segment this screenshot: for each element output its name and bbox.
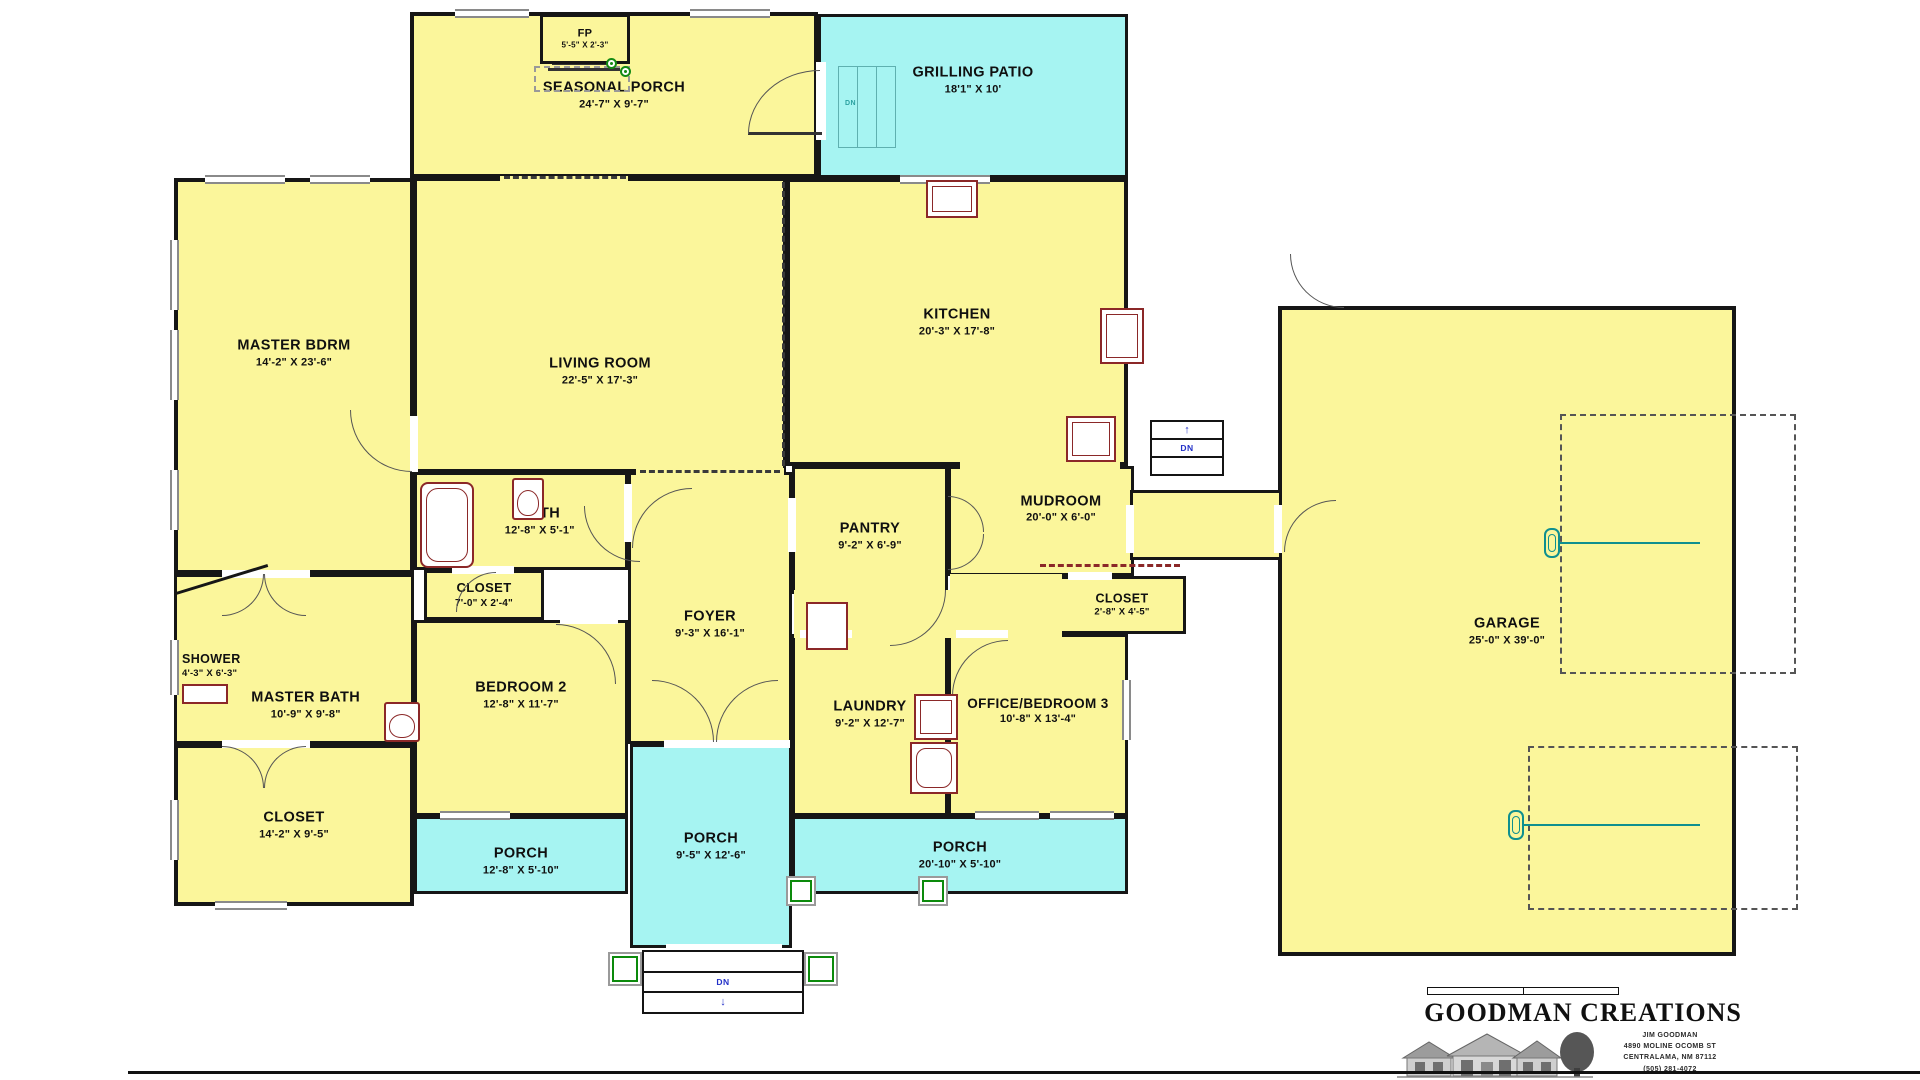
stair-tread: [858, 67, 877, 147]
room-dims: 9'-3" X 16'-1": [631, 626, 789, 640]
room-dims: 9'-5" X 12'-6": [633, 848, 789, 862]
room-dims: 4'-3" X 6'-3": [182, 668, 241, 680]
stairs-dn-label: DN: [845, 100, 856, 107]
opening-dash-line: [504, 176, 626, 179]
door-gap: [956, 630, 1008, 638]
garage-door-track: [1560, 542, 1700, 544]
garage-bay-outline: [1560, 414, 1796, 674]
window: [170, 800, 179, 860]
room-name: OFFICE/BEDROOM 3: [951, 695, 1125, 713]
room-pantry: PANTRY 9'-2" X 6'-9": [792, 466, 948, 594]
washer: [914, 694, 958, 740]
room-dims: 10'-8" X 13'-4": [951, 713, 1125, 727]
garage-door-opener-icon: [1544, 528, 1560, 558]
room-label: MASTER BDRM 14'-2" X 23'-6": [178, 336, 410, 369]
window: [975, 811, 1039, 820]
window: [1122, 680, 1131, 740]
up-arrow: ↑: [1184, 425, 1190, 436]
room-label: KITCHEN 20'-3" X 17'-8": [790, 305, 1124, 338]
room-mudroom-closet: CLOSET 2'-8" X 4'-5": [1058, 576, 1186, 634]
window: [170, 640, 179, 695]
room-label: FOYER 9'-3" X 16'-1": [631, 607, 789, 640]
room-name: FOYER: [631, 607, 789, 626]
builder-logo: GOODMAN CREATIONS JIM: [1395, 984, 1745, 1076]
room-label: PANTRY 9'-2" X 6'-9": [795, 520, 945, 553]
toilet: [384, 702, 420, 742]
window: [1050, 811, 1114, 820]
plant-icon: [620, 66, 631, 77]
room-porch-center: PORCH 9'-5" X 12'-6": [630, 744, 792, 948]
door-gap: [1274, 505, 1282, 553]
room-name: PORCH: [417, 844, 625, 863]
logo-contact-line: CENTRALAMA, NM 87112: [1595, 1052, 1745, 1063]
floor-plan-canvas: SEASONAL PORCH 24'-7" X 9'-7" GRILLING P…: [0, 0, 1920, 1080]
stove: [1100, 308, 1144, 364]
window: [170, 240, 179, 310]
porch-column: [922, 880, 944, 902]
window: [170, 330, 179, 400]
logo-address-block: JIM GOODMAN 4890 MOLINE OCOMB ST CENTRAL…: [1595, 1030, 1745, 1075]
dryer-inner: [916, 748, 952, 788]
room-porch-right: PORCH 20'-10" X 5'-10": [792, 816, 1128, 894]
vanity-sink: [182, 684, 228, 704]
wall-segment: [1427, 987, 1619, 995]
kitchen-sink: [926, 180, 978, 218]
fridge-inner: [1072, 422, 1110, 456]
room-master-bedroom: MASTER BDRM 14'-2" X 23'-6": [174, 178, 414, 574]
stair-tread: DN: [644, 973, 802, 994]
room-dims: 10'-9" X 9'-8": [200, 707, 411, 721]
logo-title: GOODMAN CREATIONS: [1423, 998, 1743, 1028]
garage-stairs: ↑ DN: [1150, 420, 1224, 476]
front-steps: DN ↓: [642, 950, 804, 1014]
kitchen-mudroom-opening: [960, 462, 1120, 472]
room-name: PORCH: [633, 829, 789, 848]
room-dims: 12'-8" X 11'-7": [417, 697, 625, 711]
room-dims: 22'-5" X 17'-3": [417, 373, 783, 387]
door-gap: [560, 616, 618, 624]
room-fireplace: FP 5'-5" X 2'-3": [540, 14, 630, 64]
porch-column: [790, 880, 812, 902]
room-name: SHOWER: [182, 652, 241, 668]
stove-inner: [1106, 314, 1138, 358]
room-porch-left: PORCH 12'-8" X 5'-10": [414, 816, 628, 894]
room-label: PORCH 9'-5" X 12'-6": [633, 829, 789, 862]
window: [170, 470, 179, 530]
room-dims: 14'-2" X 23'-6": [178, 355, 410, 369]
garage-entry-arc: [1290, 254, 1344, 308]
garage-door-track: [1524, 824, 1700, 826]
room-label: OFFICE/BEDROOM 3 10'-8" X 13'-4": [951, 695, 1125, 727]
toilet-bowl: [517, 490, 539, 516]
bathtub-inner: [426, 488, 468, 562]
washer-inner: [920, 700, 952, 734]
breezeway-connector: [1130, 490, 1282, 560]
room-dims: 20'-3" X 17'-8": [790, 324, 1124, 338]
room-dims: 9'-2" X 6'-9": [795, 538, 945, 552]
room-label: LIVING ROOM 22'-5" X 17'-3": [417, 355, 783, 388]
dryer: [910, 742, 958, 794]
logo-contact-line: JIM GOODMAN: [1595, 1030, 1745, 1041]
window: [690, 9, 770, 18]
steps-dn-label: DN: [716, 977, 729, 987]
room-label: FP 5'-5" X 2'-3": [543, 27, 627, 52]
refrigerator: [1066, 416, 1116, 462]
plant-icon: [606, 58, 617, 69]
garage-bay-outline: [1528, 746, 1798, 910]
patio-stairs: [838, 66, 896, 148]
bottom-rule: [128, 1071, 1920, 1074]
room-label: CLOSET 14'-2" X 9'-5": [178, 808, 410, 841]
window: [455, 9, 529, 18]
porch-column: [808, 956, 834, 982]
room-dims: 12'-8" X 5'-10": [417, 863, 625, 877]
logo-contact-line: 4890 MOLINE OCOMB ST: [1595, 1041, 1745, 1052]
toilet-bowl: [389, 714, 415, 738]
room-name: MASTER BATH: [200, 688, 411, 707]
stair-tread: [644, 952, 802, 973]
toilet: [512, 478, 544, 520]
stairs-dn-label: DN: [1180, 443, 1193, 453]
room-label: MASTER BATH 10'-9" X 9'-8": [200, 688, 411, 721]
stair-tread: [1152, 458, 1222, 474]
room-label: PORCH 20'-10" X 5'-10": [795, 838, 1125, 871]
stair-tread: [877, 67, 895, 147]
room-label: PORCH 12'-8" X 5'-10": [417, 844, 625, 877]
bathtub: [420, 482, 474, 568]
door-gap: [1068, 572, 1112, 580]
room-name: CLOSET: [1061, 591, 1183, 607]
window: [215, 901, 287, 910]
cabinet: [806, 602, 848, 650]
room-dims: 2'-8" X 4'-5": [1061, 607, 1183, 619]
room-dims: 20'-10" X 5'-10": [795, 857, 1125, 871]
room-name: KITCHEN: [790, 305, 1124, 324]
mudroom-bench-line: [1040, 564, 1180, 567]
garage-door-opener-icon: [1508, 810, 1524, 840]
room-label: CLOSET 2'-8" X 4'-5": [1061, 591, 1183, 620]
room-living-room: LIVING ROOM 22'-5" X 17'-3": [414, 178, 786, 472]
room-shower-label: SHOWER 4'-3" X 6'-3": [182, 652, 241, 680]
room-name: MASTER BDRM: [178, 336, 410, 355]
sink-basin: [932, 186, 972, 212]
porch-column: [612, 956, 638, 982]
stair-tread: [839, 67, 858, 147]
opening-dash-line: [640, 470, 780, 473]
room-name: FP: [543, 27, 627, 41]
room-dims: 14'-2" X 9'-5": [178, 827, 410, 841]
stair-tread: DN: [1152, 440, 1222, 458]
window: [205, 175, 285, 184]
hall-opening: [950, 574, 1062, 638]
wall-tick: [1523, 988, 1529, 994]
stair-tread: ↓: [644, 993, 802, 1012]
room-name: CLOSET: [178, 808, 410, 827]
window: [440, 811, 510, 820]
room-name: LIVING ROOM: [417, 355, 783, 374]
stair-tread: ↑: [1152, 422, 1222, 440]
window: [310, 175, 370, 184]
ceiling-break-line: [782, 182, 785, 466]
room-dims: 5'-5" X 2'-3": [543, 41, 627, 51]
door-gap: [1126, 505, 1134, 553]
room-name: PORCH: [795, 838, 1125, 857]
door-gap: [788, 498, 796, 552]
down-arrow: ↓: [720, 997, 726, 1008]
room-name: PANTRY: [795, 520, 945, 539]
